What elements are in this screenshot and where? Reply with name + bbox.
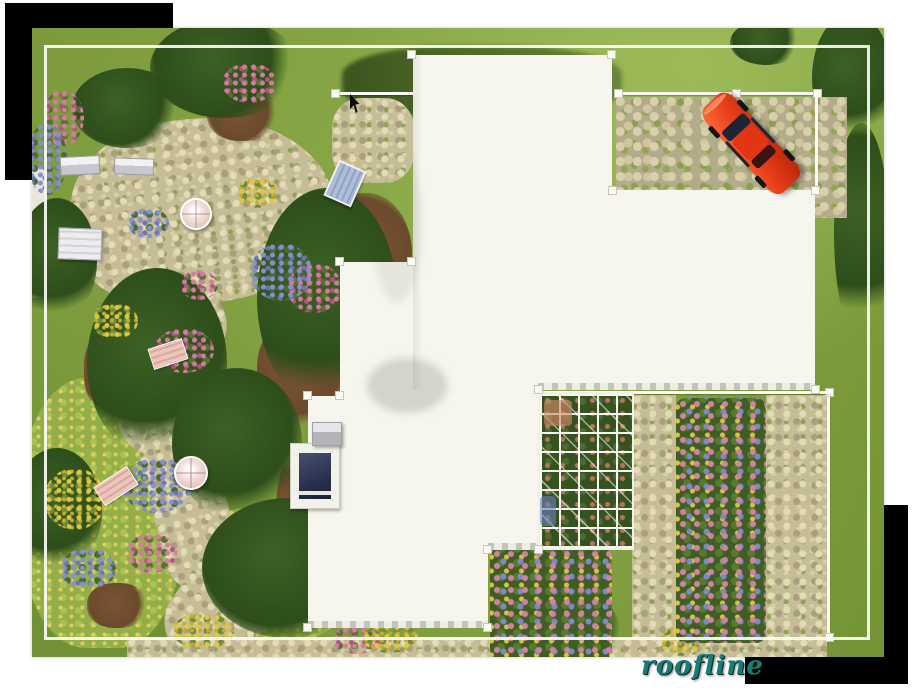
caption-text: roofline <box>641 651 764 681</box>
lot-overview-photo <box>32 28 884 657</box>
photo-inner-frame <box>44 45 870 640</box>
caption-roofline: roofline <box>641 651 764 681</box>
page-canvas: roofline <box>0 0 920 690</box>
